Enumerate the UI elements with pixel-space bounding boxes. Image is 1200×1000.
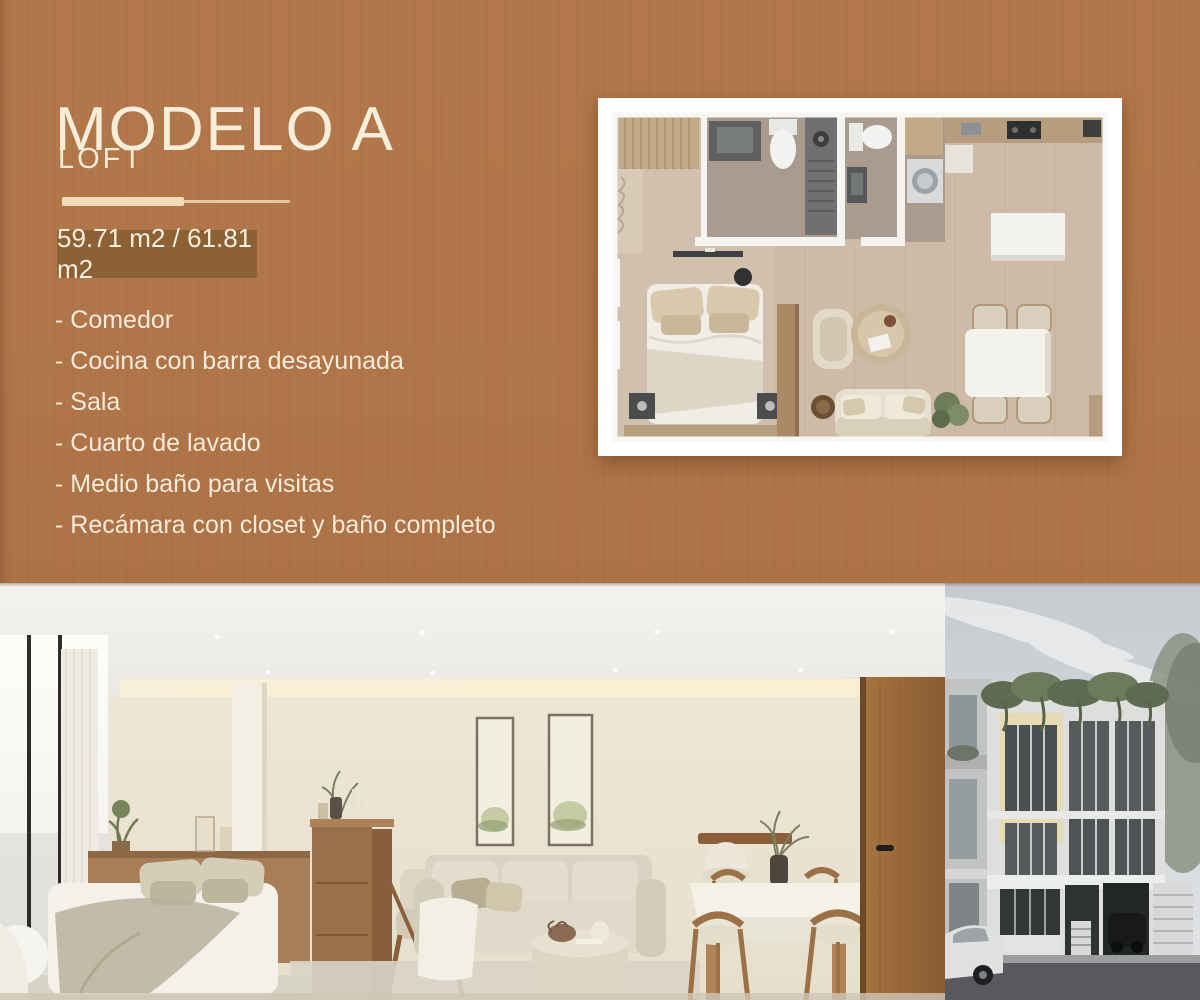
ground-floor — [1000, 883, 1193, 963]
pendant-lamp — [734, 268, 752, 286]
feature-sala: - Sala — [55, 382, 496, 423]
floorplan-image — [598, 98, 1122, 456]
pillar — [232, 683, 267, 855]
parked-suv — [1108, 913, 1146, 947]
feature-comedor: - Comedor — [55, 300, 496, 341]
model-subtitle: LOFT — [58, 143, 144, 176]
dining-area — [965, 305, 1051, 423]
feature-recamara: - Recámara con closet y baño completo — [55, 505, 496, 546]
feature-medio-bano: - Medio baño para visitas — [55, 464, 496, 505]
photo-strip — [0, 583, 1200, 1000]
interior-photo — [0, 583, 945, 1000]
entry-stairs — [1071, 921, 1091, 957]
main-building — [987, 681, 1193, 967]
door-handle — [876, 845, 894, 851]
area-badge: 59.71 m2 / 61.81 m2 — [57, 230, 257, 278]
feature-list: - Comedor - Cocina con barra desayunada … — [55, 300, 496, 546]
dining-table — [965, 329, 1051, 397]
bed — [624, 268, 784, 439]
middle-windows — [1005, 819, 1155, 875]
toilet-half-bath — [849, 123, 863, 151]
half-bath — [845, 117, 899, 242]
bathroom-main — [701, 117, 837, 242]
divider — [62, 197, 290, 207]
laundry-room — [905, 117, 945, 242]
floorplan-svg — [609, 109, 1111, 445]
exterior-photo — [945, 583, 1200, 1000]
upper-windows — [1005, 721, 1155, 811]
page: MODELO A LOFT 59.71 m2 / 61.81 m2 - Come… — [0, 0, 1200, 1000]
exterior-svg — [945, 583, 1200, 1000]
succulent — [548, 924, 576, 942]
divider-accent — [62, 197, 184, 206]
feature-cocina: - Cocina con barra desayunada — [55, 341, 496, 382]
feature-cuarto-lavado: - Cuarto de lavado — [55, 423, 496, 464]
kitchen-island — [991, 213, 1065, 261]
hero-section: MODELO A LOFT 59.71 m2 / 61.81 m2 - Come… — [0, 0, 1200, 583]
sofa-throw — [418, 897, 478, 980]
interior-svg — [0, 583, 945, 1000]
kitchen-sink — [961, 123, 981, 135]
sofa — [835, 389, 931, 437]
door — [860, 677, 945, 1000]
